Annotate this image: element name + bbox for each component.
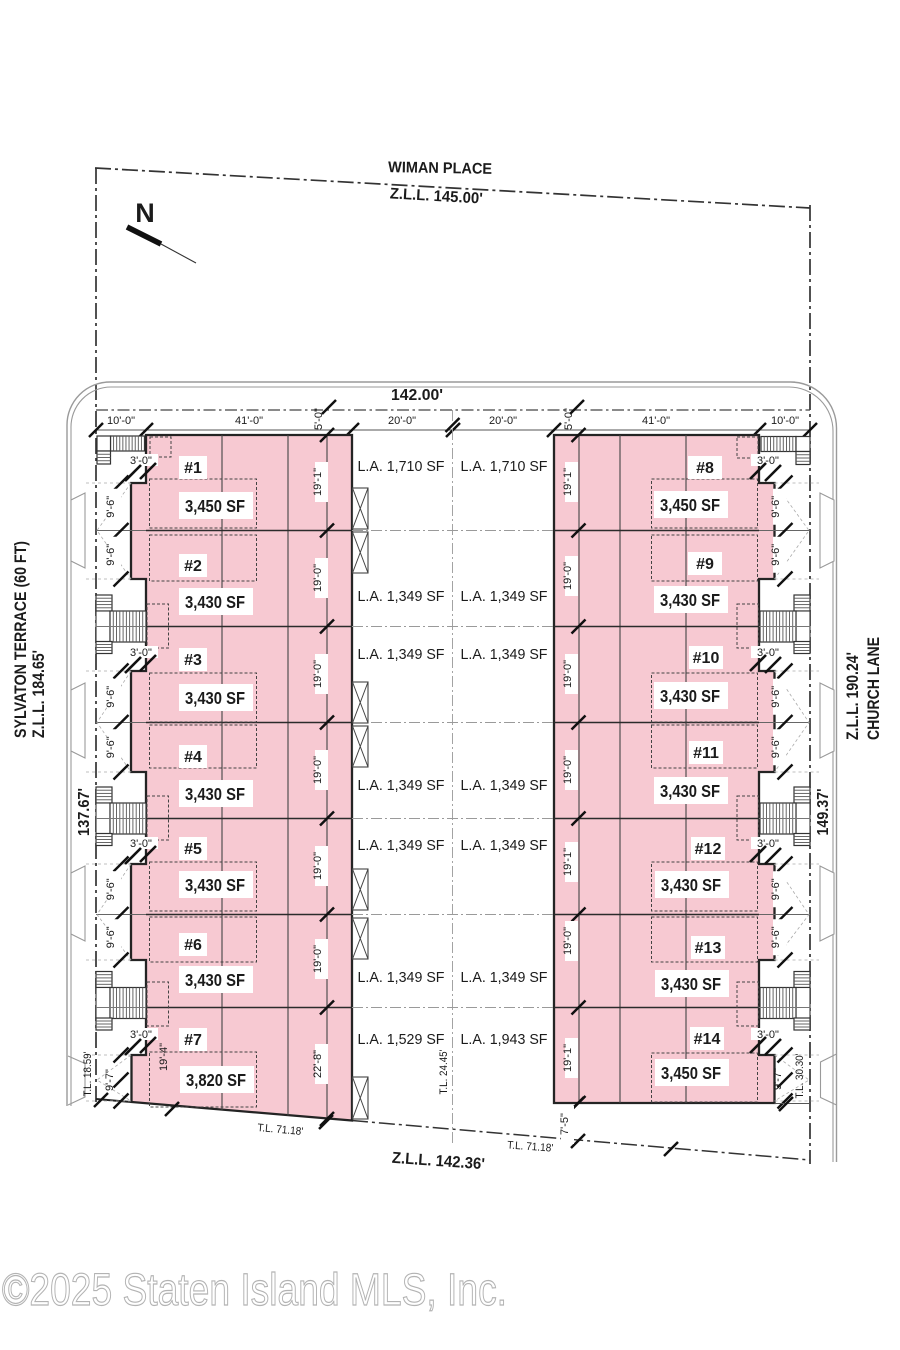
svg-text:142.00': 142.00' xyxy=(391,387,443,404)
svg-text:3,450 SF: 3,450 SF xyxy=(661,1063,721,1083)
svg-text:9'-6": 9'-6" xyxy=(105,496,117,518)
svg-text:3,430 SF: 3,430 SF xyxy=(185,592,245,612)
svg-text:#5: #5 xyxy=(184,841,202,858)
svg-text:41'-0": 41'-0" xyxy=(642,415,670,427)
svg-text:L.A. 1,710 SF: L.A. 1,710 SF xyxy=(358,459,445,475)
svg-text:#3: #3 xyxy=(184,652,202,669)
svg-text:#14: #14 xyxy=(694,1031,721,1048)
svg-text:9'-6": 9'-6" xyxy=(770,686,782,708)
svg-text:9'-6": 9'-6" xyxy=(105,686,117,708)
svg-text:20'-0": 20'-0" xyxy=(489,415,517,427)
svg-text:CHURCH LANE: CHURCH LANE xyxy=(865,637,883,740)
svg-text:3'-0": 3'-0" xyxy=(757,647,779,659)
svg-text:3,820 SF: 3,820 SF xyxy=(186,1070,246,1090)
svg-text:19'-0": 19'-0" xyxy=(562,660,574,688)
svg-text:3,430 SF: 3,430 SF xyxy=(660,686,720,706)
svg-text:19'-0": 19'-0" xyxy=(562,927,574,955)
svg-text:7'-5": 7'-5" xyxy=(559,1113,571,1135)
svg-text:137.67': 137.67' xyxy=(76,788,93,836)
svg-text:19'-4": 19'-4" xyxy=(158,1043,170,1071)
svg-text:3,430 SF: 3,430 SF xyxy=(185,784,245,804)
svg-text:9'-6": 9'-6" xyxy=(770,544,782,566)
svg-text:#11: #11 xyxy=(693,745,719,762)
svg-text:T.L. 18.59': T.L. 18.59' xyxy=(82,1052,94,1097)
svg-text:22'-8": 22'-8" xyxy=(312,1050,324,1078)
svg-text:L.A. 1,349 SF: L.A. 1,349 SF xyxy=(461,647,548,663)
svg-text:WIMAN PLACE: WIMAN PLACE xyxy=(388,159,492,178)
svg-text:9'-6": 9'-6" xyxy=(770,736,782,758)
svg-text:5'-0": 5'-0" xyxy=(563,408,575,430)
svg-text:#13: #13 xyxy=(695,940,722,957)
svg-text:9'-6": 9'-6" xyxy=(105,736,117,758)
svg-text:19'-1": 19'-1" xyxy=(562,468,574,496)
svg-text:3,430 SF: 3,430 SF xyxy=(661,875,721,895)
svg-text:#10: #10 xyxy=(693,650,720,667)
svg-text:3,450 SF: 3,450 SF xyxy=(660,495,720,515)
svg-text:9'-6": 9'-6" xyxy=(105,926,117,948)
svg-text:9'-6": 9'-6" xyxy=(770,926,782,948)
svg-text:L.A. 1,710 SF: L.A. 1,710 SF xyxy=(461,459,548,475)
svg-text:T.L. 30.30': T.L. 30.30' xyxy=(794,1054,806,1099)
svg-text:L.A. 1,349 SF: L.A. 1,349 SF xyxy=(358,647,445,663)
svg-text:5'-0": 5'-0" xyxy=(313,408,325,430)
svg-text:#12: #12 xyxy=(695,841,722,858)
svg-text:3,430 SF: 3,430 SF xyxy=(660,590,720,610)
svg-text:L.A. 1,349 SF: L.A. 1,349 SF xyxy=(358,778,445,794)
svg-text:3'-0": 3'-0" xyxy=(757,838,779,850)
svg-text:3,430 SF: 3,430 SF xyxy=(660,781,720,801)
svg-text:19'-0": 19'-0" xyxy=(562,562,574,590)
svg-text:19'-0": 19'-0" xyxy=(312,945,324,973)
svg-text:19'-1": 19'-1" xyxy=(312,468,324,496)
svg-text:L.A. 1,349 SF: L.A. 1,349 SF xyxy=(358,970,445,986)
svg-text:#6: #6 xyxy=(184,937,202,954)
svg-text:9'-7": 9'-7" xyxy=(104,1069,116,1091)
svg-text:T.L. 24.45': T.L. 24.45' xyxy=(438,1050,450,1095)
svg-text:10'-0": 10'-0" xyxy=(107,415,135,427)
svg-text:N: N xyxy=(135,198,155,228)
svg-text:3,450 SF: 3,450 SF xyxy=(185,496,245,516)
svg-text:3,430 SF: 3,430 SF xyxy=(661,974,721,994)
svg-text:#2: #2 xyxy=(184,558,202,575)
svg-text:Z.L.L. 184.65': Z.L.L. 184.65' xyxy=(30,650,48,738)
svg-text:L.A. 1,349 SF: L.A. 1,349 SF xyxy=(358,589,445,605)
svg-text:#9: #9 xyxy=(696,556,714,573)
svg-text:3,430 SF: 3,430 SF xyxy=(185,688,245,708)
svg-text:19'-0": 19'-0" xyxy=(312,852,324,880)
svg-text:9'-6": 9'-6" xyxy=(770,878,782,900)
svg-text:19'-0": 19'-0" xyxy=(312,756,324,784)
svg-text:19'-0": 19'-0" xyxy=(562,756,574,784)
svg-text:#7: #7 xyxy=(184,1032,202,1049)
svg-text:41'-0": 41'-0" xyxy=(235,415,263,427)
svg-text:L.A. 1,943 SF: L.A. 1,943 SF xyxy=(461,1032,548,1048)
svg-text:#8: #8 xyxy=(696,460,714,477)
svg-text:3'-0": 3'-0" xyxy=(757,455,779,467)
svg-text:#4: #4 xyxy=(184,749,202,766)
svg-text:9'-7": 9'-7" xyxy=(772,1068,784,1090)
svg-text:149.37': 149.37' xyxy=(815,789,832,836)
svg-text:L.A. 1,349 SF: L.A. 1,349 SF xyxy=(461,970,548,986)
svg-text:19'-0": 19'-0" xyxy=(312,660,324,688)
svg-text:L.A. 1,349 SF: L.A. 1,349 SF xyxy=(461,589,548,605)
svg-text:9'-6": 9'-6" xyxy=(105,878,117,900)
svg-text:L.A. 1,529 SF: L.A. 1,529 SF xyxy=(358,1032,445,1048)
svg-text:9'-6": 9'-6" xyxy=(770,496,782,518)
svg-text:Z.L.L. 190.24': Z.L.L. 190.24' xyxy=(844,652,862,740)
svg-text:19'-1": 19'-1" xyxy=(562,1044,574,1072)
svg-text:3'-0": 3'-0" xyxy=(757,1029,779,1041)
svg-text:3,430 SF: 3,430 SF xyxy=(185,875,245,895)
svg-text:SYLVATON TERRACE (60 FT): SYLVATON TERRACE (60 FT) xyxy=(12,541,30,738)
svg-text:#1: #1 xyxy=(184,460,202,477)
svg-text:9'-6": 9'-6" xyxy=(105,544,117,566)
svg-text:20'-0": 20'-0" xyxy=(388,415,416,427)
svg-text:L.A. 1,349 SF: L.A. 1,349 SF xyxy=(358,838,445,854)
svg-text:19'-0": 19'-0" xyxy=(312,564,324,592)
svg-text:L.A. 1,349 SF: L.A. 1,349 SF xyxy=(461,838,548,854)
svg-text:3,430 SF: 3,430 SF xyxy=(185,970,245,990)
svg-text:10'-0": 10'-0" xyxy=(771,415,799,427)
svg-text:19'-1": 19'-1" xyxy=(562,848,574,876)
svg-text:©2025 Staten Island MLS, Inc.: ©2025 Staten Island MLS, Inc. xyxy=(2,1264,507,1315)
svg-text:L.A. 1,349 SF: L.A. 1,349 SF xyxy=(461,778,548,794)
